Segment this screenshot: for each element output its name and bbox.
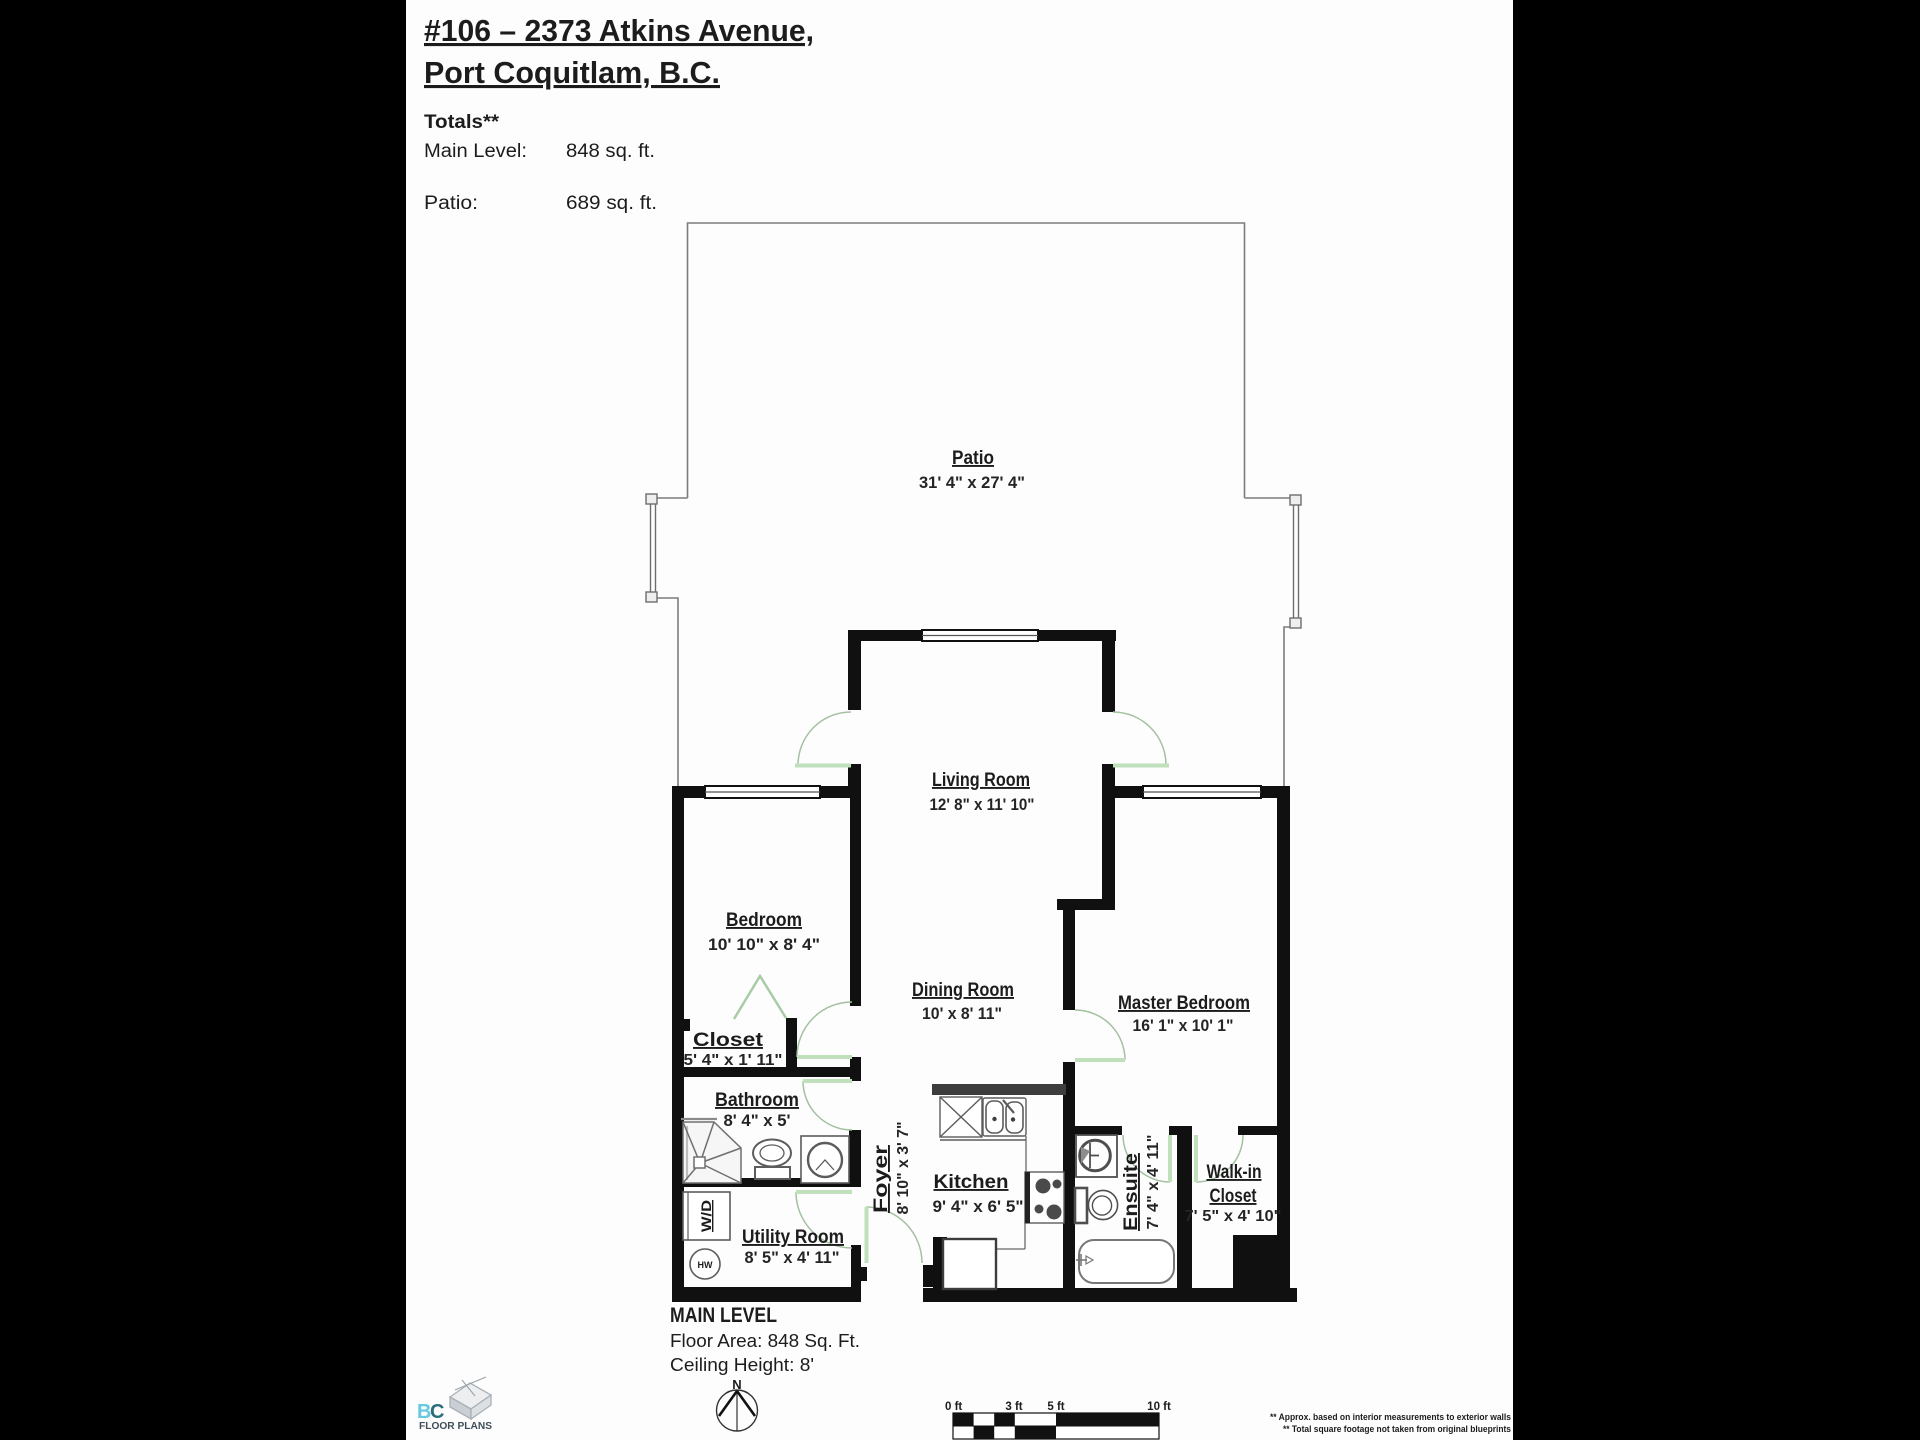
svg-text:8' 10" x 3' 7": 8' 10" x 3' 7": [895, 1122, 912, 1215]
svg-text:Closet: Closet: [1210, 1186, 1258, 1207]
svg-text:Foyer: Foyer: [871, 1144, 892, 1213]
svg-text:16' 1" x 10' 1": 16' 1" x 10' 1": [1133, 1017, 1234, 1035]
svg-text:Main Level:: Main Level:: [424, 141, 527, 162]
svg-text:3 ft: 3 ft: [1005, 1401, 1022, 1413]
svg-text:8' 4" x 5': 8' 4" x 5': [724, 1112, 791, 1130]
svg-text:689 sq. ft.: 689 sq. ft.: [566, 193, 657, 214]
svg-text:9' 4" x 6' 5": 9' 4" x 6' 5": [933, 1198, 1024, 1216]
svg-text:Kitchen: Kitchen: [934, 1172, 1009, 1193]
svg-text:Port Coquitlam, B.C.: Port Coquitlam, B.C.: [424, 55, 720, 90]
svg-text:Patio:: Patio:: [424, 193, 478, 214]
svg-text:31' 4" x 27' 4": 31' 4" x 27' 4": [919, 474, 1025, 492]
svg-text:848 sq. ft.: 848 sq. ft.: [566, 141, 655, 162]
svg-text:10' 10" x 8' 4": 10' 10" x 8' 4": [708, 936, 820, 954]
svg-text:0 ft: 0 ft: [945, 1401, 962, 1413]
svg-text:5 ft: 5 ft: [1047, 1401, 1064, 1413]
svg-text:5' 4" x 1' 11": 5' 4" x 1' 11": [684, 1052, 783, 1069]
svg-text:W/D: W/D: [698, 1200, 714, 1232]
svg-text:10 ft: 10 ft: [1147, 1401, 1171, 1413]
svg-text:Walk-in: Walk-in: [1207, 1162, 1262, 1183]
svg-text:Closet: Closet: [693, 1030, 764, 1051]
svg-text:#106 – 2373 Atkins Avenue,: #106 – 2373 Atkins Avenue,: [424, 13, 814, 48]
svg-text:Utility Room: Utility Room: [742, 1227, 844, 1248]
svg-text:** Total square footage not ta: ** Total square footage not taken from o…: [1283, 1424, 1511, 1434]
svg-text:Dining Room: Dining Room: [912, 980, 1014, 1001]
svg-text:Master Bedroom: Master Bedroom: [1118, 993, 1250, 1014]
svg-text:HW: HW: [698, 1260, 713, 1270]
svg-text:7' 4" x 4' 11": 7' 4" x 4' 11": [1145, 1135, 1162, 1230]
svg-text:12' 8" x 11' 10": 12' 8" x 11' 10": [930, 796, 1035, 814]
svg-text:FLOOR PLANS: FLOOR PLANS: [419, 1421, 492, 1432]
svg-text:Ceiling Height: 8': Ceiling Height: 8': [670, 1354, 814, 1375]
svg-text:Ensuite: Ensuite: [1121, 1153, 1142, 1231]
svg-text:BC: BC: [417, 1401, 444, 1423]
svg-text:Living Room: Living Room: [932, 770, 1030, 791]
svg-text:8' 5" x 4' 11": 8' 5" x 4' 11": [745, 1249, 840, 1267]
svg-text:10' x 8' 11": 10' x 8' 11": [922, 1005, 1002, 1023]
svg-text:7' 5" x 4' 10": 7' 5" x 4' 10": [1185, 1208, 1282, 1225]
svg-text:MAIN LEVEL: MAIN LEVEL: [670, 1304, 777, 1327]
svg-text:Floor Area: 848 Sq. Ft.: Floor Area: 848 Sq. Ft.: [670, 1330, 860, 1351]
svg-text:Totals**: Totals**: [424, 112, 500, 133]
svg-text:Bathroom: Bathroom: [715, 1090, 799, 1111]
svg-text:Bedroom: Bedroom: [726, 910, 802, 931]
svg-text:Patio: Patio: [952, 448, 994, 469]
svg-text:** Approx. based on interior m: ** Approx. based on interior measurement…: [1270, 1412, 1511, 1422]
